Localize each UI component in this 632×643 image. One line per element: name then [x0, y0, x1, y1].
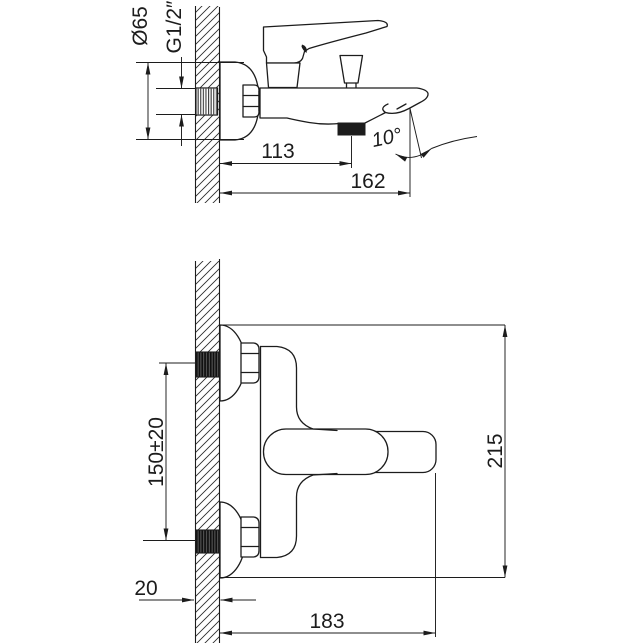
hex-nut-lower	[241, 517, 259, 557]
ext-lines-g12	[156, 89, 196, 115]
dim-label-162: 162	[350, 170, 385, 193]
dim-label-g12: G1/2″	[163, 0, 186, 53]
dim-label-angle: 10°	[370, 124, 404, 152]
body-capsule-front	[264, 429, 389, 475]
inlet-pipe-lower	[196, 530, 220, 553]
angle-leader	[432, 137, 478, 149]
cartridge-housing	[267, 63, 301, 88]
body-neck-upper	[261, 347, 338, 431]
dim-label-215: 215	[484, 433, 507, 468]
faucet-front-view	[196, 325, 436, 578]
hex-nut-upper	[241, 343, 259, 383]
inlet-pipe-upper	[196, 352, 220, 377]
dim-label-150: 150±20	[145, 417, 168, 487]
wall-section-front	[196, 259, 220, 643]
dim-label-113: 113	[261, 140, 294, 163]
diverter-knob-stem	[347, 83, 357, 88]
bath-mixer-dimension-drawing: Ø65 G1/2″ 113 162 10° 150±20 21	[0, 0, 632, 643]
front-view-dimensions: 150±20 215 20 183	[134, 325, 507, 637]
hex-nut-side	[243, 85, 259, 117]
angle-arc	[396, 149, 432, 158]
wall-hatch-front	[196, 261, 220, 643]
dim-label-183: 183	[309, 610, 344, 633]
technical-drawing-page: Ø65 G1/2″ 113 162 10° 150±20 21	[0, 0, 632, 643]
dim-label-d65: Ø65	[129, 6, 152, 46]
dim-label-20: 20	[134, 577, 157, 600]
aerator	[338, 123, 366, 136]
faucet-side-view	[196, 21, 428, 141]
thread-texture	[197, 89, 217, 115]
lever-handle-side	[264, 21, 388, 64]
body-neck-lower	[261, 474, 338, 558]
angle-ref-slanted	[410, 109, 422, 159]
diverter-knob	[340, 56, 363, 84]
